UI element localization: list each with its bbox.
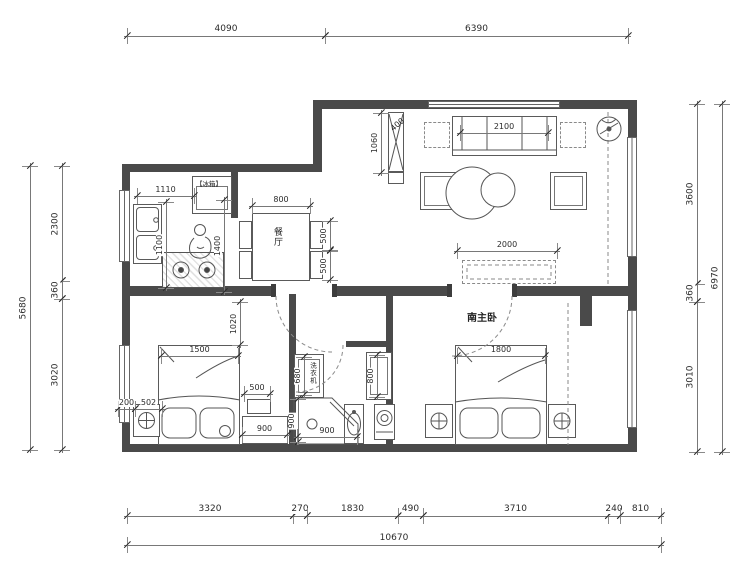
dim-text-master-1800: 1800 xyxy=(490,346,512,354)
plan-label-label-master: 南主卧 xyxy=(467,314,497,324)
dim-text-kitchen-1100: 1100 xyxy=(156,234,164,256)
dim-text-bed1-500: 500 xyxy=(248,384,265,392)
dim-text-bed1-1500: 1500 xyxy=(188,346,210,354)
dim-text-kitchen-1400: 1400 xyxy=(214,235,222,257)
dim-text-top-4090: 4090 xyxy=(214,25,239,34)
dim-text-right-6970: 6970 xyxy=(712,266,721,291)
dim-text-left-2300: 2300 xyxy=(52,211,61,236)
dim-text-kitchen-1110: 1110 xyxy=(154,186,176,194)
dim-text-bath-800: 800 xyxy=(367,367,375,384)
plan-label-living-400: 400 xyxy=(389,117,406,133)
dim-text-living-2000: 2000 xyxy=(496,241,518,249)
dim-text-bed1-200: 200 xyxy=(118,399,135,407)
dim-text-bottom-1830: 1830 xyxy=(340,505,365,514)
dim-text-bath-900h: 900 xyxy=(318,427,335,435)
dim-text-bath-680: 680 xyxy=(294,367,302,384)
dim-text-left-3020: 3020 xyxy=(52,362,61,387)
dim-text-bottom-810: 810 xyxy=(631,505,650,514)
dim-text-top-6390: 6390 xyxy=(464,25,489,34)
annotation-layer: 4090639033202701830490371024081010670568… xyxy=(0,0,740,581)
dim-text-right-360: 360 xyxy=(687,283,696,302)
dim-text-left-360: 360 xyxy=(52,280,61,299)
dim-text-bottom-490: 490 xyxy=(401,505,420,514)
plan-label-label-dining: 餐厅 xyxy=(272,227,281,247)
dim-text-bottom-3710: 3710 xyxy=(503,505,528,514)
dim-text-left-5680: 5680 xyxy=(20,296,29,321)
dim-text-bed1-502: 502 xyxy=(140,399,157,407)
dim-text-bed1-900: 900 xyxy=(256,425,273,433)
plan-label-label-fridge: 【冰箱】 xyxy=(196,181,222,188)
dim-text-bed1-1020: 1020 xyxy=(230,312,238,334)
plan-label-label-washer: 洗衣机 xyxy=(309,362,316,385)
dim-text-bath-900v: 900 xyxy=(288,412,296,429)
dim-text-living-2100: 2100 xyxy=(493,123,515,131)
dim-text-right-3600: 3600 xyxy=(687,182,696,207)
dim-text-dining-800: 800 xyxy=(272,196,289,204)
floor-plan-canvas: 4090639033202701830490371024081010670568… xyxy=(0,0,740,581)
dim-text-dining-500a: 500 xyxy=(320,227,328,244)
dim-text-living-1060: 1060 xyxy=(371,132,379,154)
dim-text-bottom-3320: 3320 xyxy=(198,505,223,514)
dim-text-right-3010: 3010 xyxy=(687,365,696,390)
dim-text-dining-500b: 500 xyxy=(320,257,328,274)
dim-text-bottom-10670: 10670 xyxy=(379,534,410,543)
